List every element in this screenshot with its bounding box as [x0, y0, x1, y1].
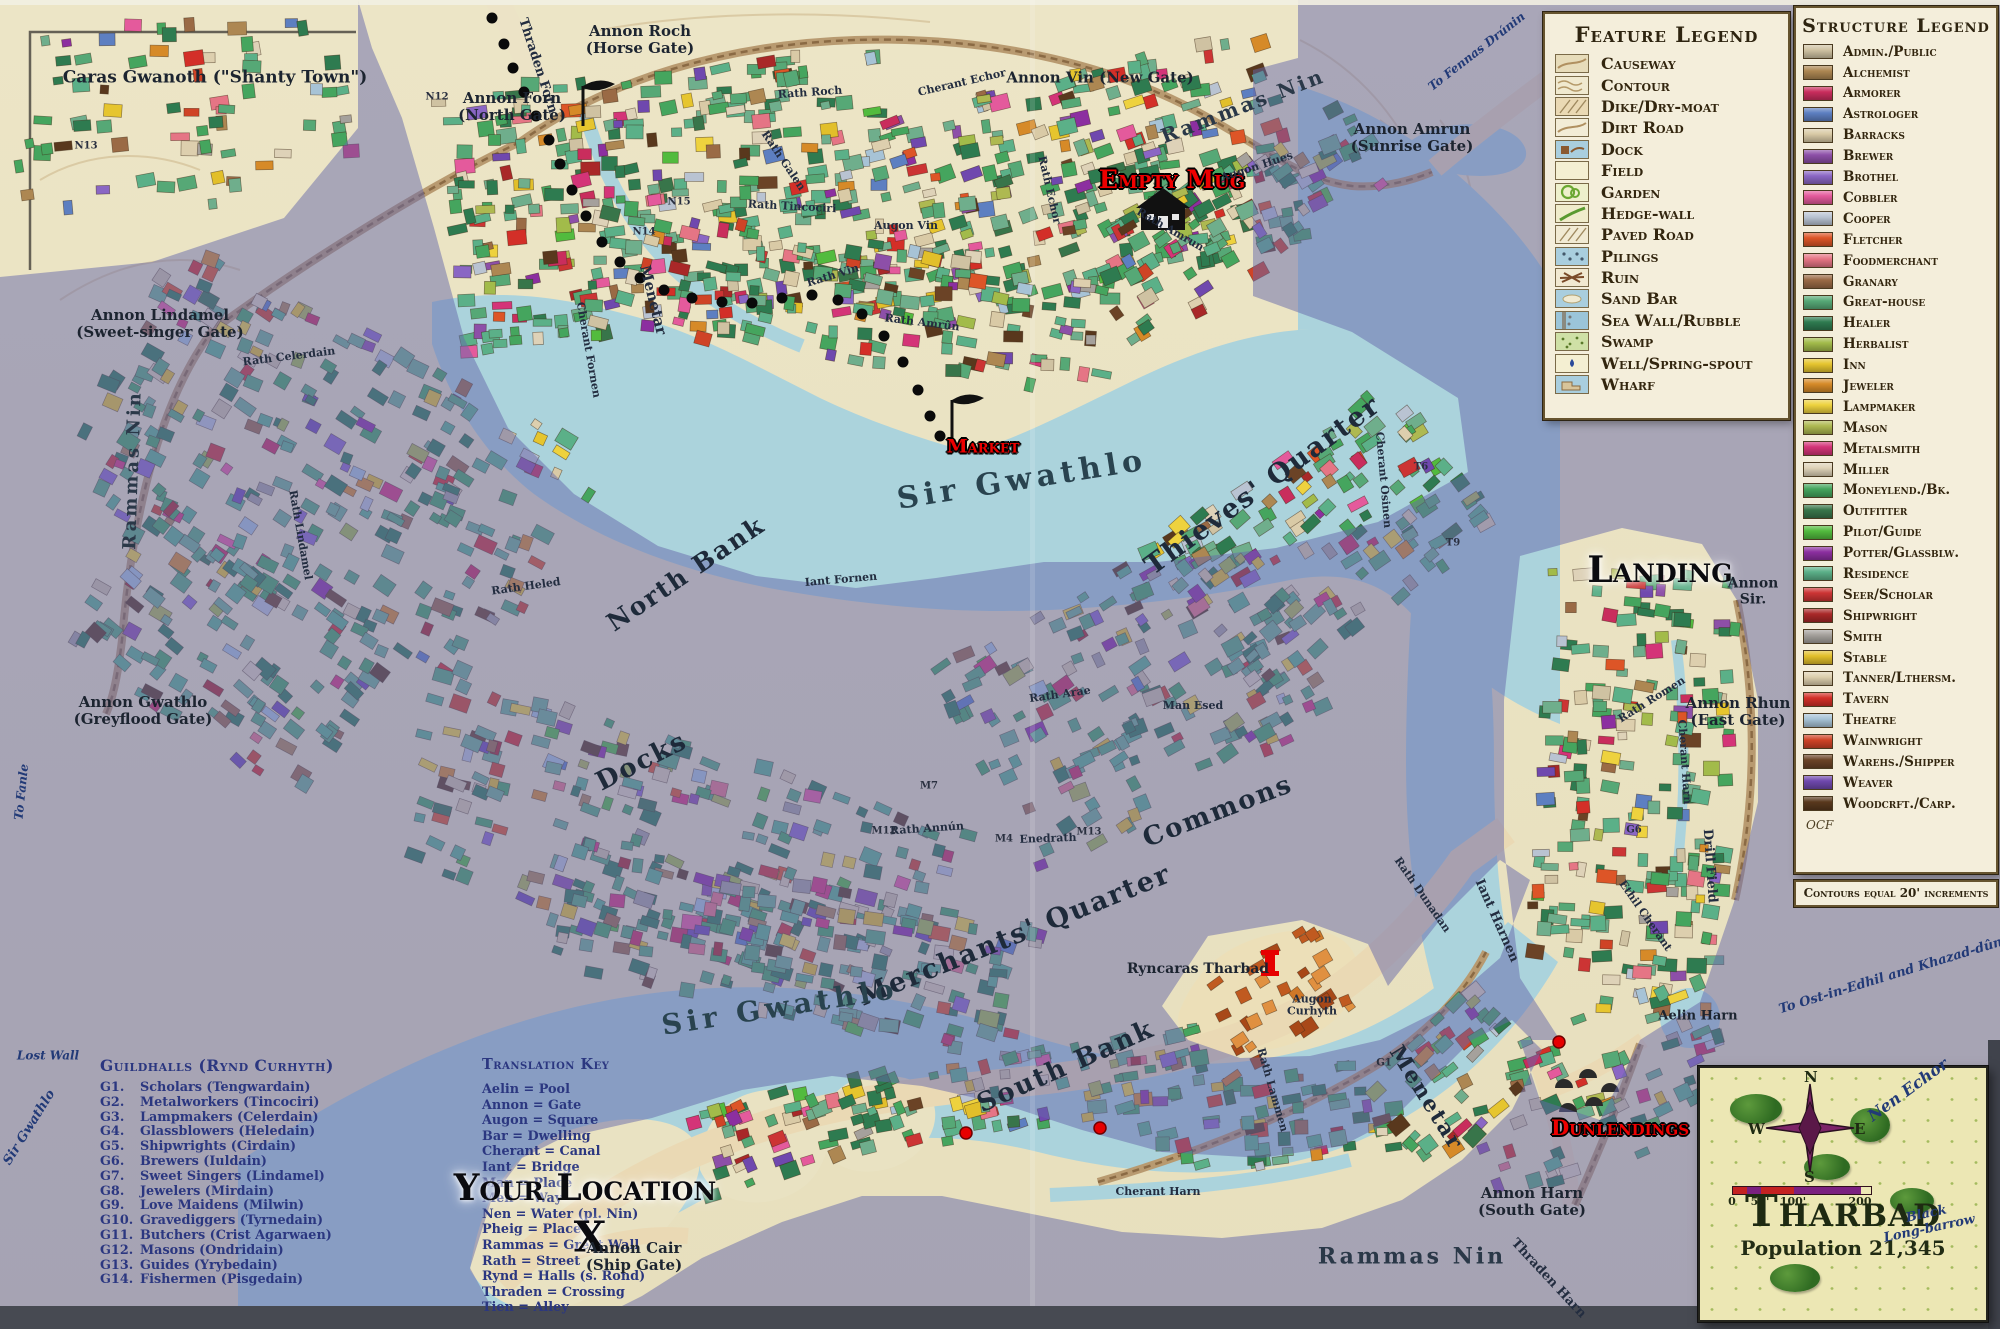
building	[638, 100, 650, 112]
contour-line	[600, 14, 930, 30]
guildhall-code: G2.	[100, 1096, 140, 1111]
building	[463, 208, 476, 225]
building	[659, 100, 677, 116]
building	[1626, 581, 1646, 589]
building	[838, 188, 853, 203]
building	[73, 120, 91, 132]
building	[242, 60, 261, 73]
building	[1565, 602, 1576, 612]
structure-legend-item: Woodcrft./Carp.	[1802, 793, 1990, 814]
building	[242, 83, 256, 98]
building	[470, 308, 486, 320]
building	[920, 295, 935, 307]
building	[1637, 608, 1655, 618]
building	[457, 145, 473, 159]
guildhall-code: G3.	[100, 1111, 140, 1126]
building	[184, 17, 195, 31]
structure-legend-item: Cooper	[1802, 208, 1990, 229]
structure-legend-label: Tanner/Lthersm.	[1843, 670, 1956, 686]
building	[74, 53, 92, 65]
building	[1012, 298, 1030, 312]
building	[1688, 856, 1699, 871]
guildhall-item: G12.Masons (Ondridain)	[100, 1244, 445, 1259]
building	[1473, 1105, 1489, 1116]
building	[798, 66, 808, 79]
building	[1702, 688, 1719, 704]
building	[1700, 844, 1709, 852]
path-swatch-icon	[1555, 118, 1589, 137]
building	[1606, 659, 1625, 670]
building	[1596, 1004, 1611, 1013]
building	[1060, 140, 1071, 152]
structure-legend-label: Tavern	[1843, 691, 1889, 707]
route-trail-dot	[747, 298, 758, 309]
building	[1088, 168, 1103, 184]
poi-marker-south-dot-3	[1553, 1036, 1565, 1048]
structure-legend-label: Residence	[1843, 566, 1909, 582]
building	[1716, 703, 1729, 716]
building	[1220, 38, 1230, 50]
structure-swatch-icon	[1803, 128, 1833, 143]
building	[797, 243, 806, 253]
building	[1636, 987, 1649, 1004]
building	[992, 291, 1009, 305]
building	[1675, 639, 1687, 654]
paper-edge-top	[0, 0, 2000, 5]
compass-rose: N E S W	[1758, 1076, 1862, 1180]
building	[996, 187, 1011, 200]
structure-swatch-icon	[1803, 441, 1833, 456]
guildhall-name: Brewers (Iuldain)	[140, 1155, 267, 1170]
building	[561, 204, 579, 214]
building	[801, 143, 817, 152]
structure-legend-label: Herbalist	[1843, 336, 1908, 352]
building	[1596, 869, 1617, 884]
building	[72, 77, 90, 92]
building	[500, 165, 513, 181]
building	[718, 322, 730, 334]
building	[492, 302, 512, 310]
building	[1166, 138, 1185, 155]
building	[199, 140, 211, 155]
building	[703, 277, 717, 291]
structure-legend-label: Miller	[1843, 462, 1889, 478]
building	[1722, 734, 1736, 747]
building	[1666, 887, 1678, 897]
guildhall-item: G6.Brewers (Iuldain)	[100, 1155, 445, 1170]
guildhalls-block: Guildhalls (Rynd Curhyth) G1.Scholars (T…	[100, 1056, 445, 1288]
seawall-swatch-icon	[1555, 311, 1589, 330]
guildhalls-title: Guildhalls (Rynd Curhyth)	[100, 1056, 445, 1075]
feature-legend-item: Dirt Road	[1553, 117, 1780, 138]
structure-swatch-icon	[1803, 608, 1833, 623]
feature-legend-item: Wharf	[1553, 374, 1780, 395]
route-trail-dot	[925, 411, 936, 422]
building	[1548, 568, 1557, 575]
feature-legend-item: Field	[1553, 160, 1780, 181]
structure-swatch-icon	[1803, 566, 1833, 581]
guildhall-item: G5.Shipwrights (Cirdain)	[100, 1140, 445, 1155]
building	[569, 214, 580, 224]
building	[1577, 740, 1587, 755]
building	[956, 315, 976, 329]
dotsgreen-swatch-icon	[1555, 332, 1589, 351]
structure-legend-panel: Structure Legend Admin./PublicAlchemistA…	[1794, 6, 1998, 874]
building	[297, 20, 309, 36]
building	[303, 120, 316, 131]
guildhall-item: G7.Sweet Singers (Lindamel)	[100, 1170, 445, 1185]
building	[475, 245, 490, 259]
building	[507, 229, 527, 245]
building	[1616, 719, 1635, 731]
building	[96, 120, 112, 133]
building	[14, 159, 24, 173]
guildhall-code: G13.	[100, 1259, 140, 1274]
building	[1676, 912, 1692, 927]
building	[1569, 862, 1578, 870]
building	[1701, 932, 1712, 945]
guildhall-name: Masons (Ondridain)	[140, 1244, 284, 1259]
building	[1598, 736, 1614, 745]
building	[1687, 958, 1707, 974]
building	[654, 71, 672, 85]
building	[1528, 902, 1538, 909]
building	[1576, 801, 1590, 814]
building	[693, 116, 705, 131]
compass-n: N	[1804, 1068, 1818, 1086]
structure-legend-label: Fletcher	[1843, 232, 1902, 248]
building	[835, 149, 850, 160]
guildhall-item: G4.Glassblowers (Heledain)	[100, 1125, 445, 1140]
building	[968, 242, 982, 252]
building	[1075, 202, 1090, 215]
structure-legend-item: Pilot/Guide	[1802, 522, 1990, 543]
building	[275, 149, 292, 158]
route-trail-dot	[807, 290, 818, 301]
feature-legend-label: Pilings	[1601, 247, 1658, 266]
building	[1713, 864, 1730, 874]
translation-entry: Aelin = Pool	[482, 1082, 747, 1098]
building	[588, 281, 597, 290]
building	[1645, 643, 1663, 659]
building	[100, 85, 109, 94]
guildhall-code: G6.	[100, 1155, 140, 1170]
structure-legend-label: Brewer	[1843, 148, 1893, 164]
structure-legend-item: Tanner/Lthersm.	[1802, 668, 1990, 689]
building	[96, 185, 110, 194]
building	[1070, 68, 1082, 81]
structure-swatch-icon	[1803, 211, 1833, 226]
building	[1563, 947, 1574, 958]
structure-legend-item: Brothel	[1802, 167, 1990, 188]
feature-legend-item: Hedge-wall	[1553, 203, 1780, 224]
building	[628, 179, 640, 190]
building	[1600, 940, 1613, 949]
building	[1694, 678, 1705, 687]
building	[256, 161, 274, 170]
building	[578, 149, 592, 160]
building	[128, 55, 147, 69]
feature-legend-label: Sand Bar	[1601, 289, 1677, 308]
guildhall-name: Fishermen (Pisgedain)	[140, 1273, 303, 1288]
building	[1616, 613, 1636, 626]
building	[1444, 1112, 1461, 1127]
building	[1571, 918, 1590, 926]
building	[493, 312, 505, 322]
building	[493, 91, 504, 99]
building	[928, 219, 946, 234]
feature-legend-label: Field	[1601, 161, 1643, 180]
guildhall-name: Sweet Singers (Lindamel)	[140, 1170, 325, 1185]
building	[1194, 280, 1213, 297]
building	[583, 199, 599, 207]
feature-legend-label: Ruin	[1601, 268, 1639, 287]
route-trail-dot	[531, 111, 542, 122]
building	[631, 284, 643, 293]
hedge-swatch-icon	[1555, 204, 1589, 223]
guildhall-code: G7.	[100, 1170, 140, 1185]
building	[1097, 183, 1112, 197]
translation-entry: Cherant = Canal	[482, 1144, 747, 1160]
feature-legend-item: Sand Bar	[1553, 288, 1780, 309]
feature-legend-item: Pilings	[1553, 246, 1780, 267]
building	[1600, 780, 1619, 794]
building	[509, 335, 522, 345]
building	[681, 93, 694, 108]
building	[1007, 1116, 1019, 1128]
contour-footnote: Contours equal 20' increments	[1794, 880, 1998, 907]
structure-legend-label: Warehs./Shipper	[1843, 754, 1954, 770]
building	[1681, 694, 1693, 702]
building	[615, 165, 625, 178]
building	[605, 140, 624, 150]
guildhall-name: Glassblowers (Heledain)	[140, 1125, 315, 1140]
building	[124, 19, 141, 32]
building	[750, 286, 760, 296]
building	[757, 247, 765, 261]
building	[1574, 690, 1587, 705]
table-edge-right	[1988, 1040, 2000, 1329]
feature-legend-item: Garden	[1553, 181, 1780, 202]
building	[956, 336, 977, 348]
building	[136, 172, 156, 188]
building	[495, 114, 507, 125]
building	[1592, 685, 1611, 700]
route-trail-dot	[555, 159, 566, 170]
building	[1690, 788, 1710, 805]
structure-legend-item: Healer	[1802, 313, 1990, 334]
fold-crease	[1030, 0, 1035, 1329]
structure-legend-label: Stable	[1843, 650, 1887, 666]
building	[1230, 129, 1246, 144]
building	[229, 178, 242, 192]
building	[1543, 701, 1562, 713]
building	[1545, 736, 1563, 745]
structure-legend-label: Shipwright	[1843, 608, 1917, 624]
map-canvas[interactable]: Feature Legend CausewayContourDike/Dry-m…	[0, 0, 2000, 1329]
building	[844, 244, 862, 260]
building	[150, 45, 169, 57]
feature-legend-item: Paved Road	[1553, 224, 1780, 245]
building	[1545, 875, 1558, 883]
building	[942, 1116, 956, 1129]
compass-s: S	[1804, 1168, 1815, 1186]
structure-legend-label: Cooper	[1843, 211, 1891, 227]
translation-entry: Bar = Dwelling	[482, 1129, 747, 1145]
building	[591, 267, 603, 279]
building	[710, 62, 731, 75]
building	[459, 181, 475, 189]
compass-w: W	[1748, 1120, 1765, 1138]
building	[54, 141, 72, 151]
building	[1161, 78, 1178, 91]
structure-legend-label: Great-house	[1843, 294, 1925, 310]
building	[62, 39, 72, 48]
feature-legend-panel: Feature Legend CausewayContourDike/Dry-m…	[1543, 12, 1790, 420]
building	[56, 55, 72, 66]
building	[1062, 225, 1076, 235]
structure-swatch-icon	[1803, 713, 1833, 728]
building	[624, 201, 638, 217]
route-trail-dot	[635, 273, 646, 284]
building	[1703, 761, 1719, 776]
building	[932, 202, 945, 218]
building	[1255, 1161, 1265, 1171]
building	[1194, 37, 1212, 52]
structure-legend-item: Fletcher	[1802, 229, 1990, 250]
guildhall-name: Metalworkers (Tincociri)	[140, 1096, 319, 1111]
building	[977, 94, 991, 103]
building	[1532, 884, 1544, 898]
building	[591, 330, 601, 341]
structure-legend-item: Weaver	[1802, 772, 1990, 793]
building	[957, 277, 969, 289]
building	[1633, 646, 1645, 657]
structure-swatch-icon	[1803, 295, 1833, 310]
structure-swatch-icon	[1803, 775, 1833, 790]
feature-legend-item: Ruin	[1553, 267, 1780, 288]
building	[1559, 903, 1575, 911]
building	[1557, 636, 1567, 647]
building	[1651, 872, 1670, 885]
structure-legend-label: Weaver	[1843, 775, 1893, 791]
dock-swatch-icon	[1555, 140, 1589, 159]
building	[604, 186, 614, 198]
building	[1573, 568, 1594, 581]
building	[1659, 784, 1671, 791]
structure-legend-label: Pilot/Guide	[1843, 524, 1921, 540]
structure-legend-item: Wainwright	[1802, 731, 1990, 752]
building	[218, 104, 235, 113]
building	[1525, 943, 1544, 960]
building	[1041, 283, 1063, 299]
building	[518, 279, 533, 289]
structure-legend-item: Seer/Scholar	[1802, 584, 1990, 605]
building	[982, 165, 998, 182]
structure-swatch-icon	[1803, 462, 1833, 477]
building	[241, 36, 253, 51]
guildhall-code: G8.	[100, 1185, 140, 1200]
building	[34, 116, 52, 125]
guildhall-name: Scholars (Tengwardain)	[140, 1081, 310, 1096]
building	[941, 1136, 953, 1147]
building	[1059, 242, 1080, 257]
structure-swatch-icon	[1803, 274, 1833, 289]
building	[719, 307, 733, 319]
building	[648, 184, 660, 195]
building	[783, 270, 800, 287]
building	[1041, 359, 1054, 371]
building	[1128, 61, 1142, 75]
building	[1624, 702, 1642, 711]
building	[663, 152, 679, 163]
building	[645, 300, 654, 313]
building	[543, 250, 558, 264]
structure-swatch-icon	[1803, 399, 1833, 414]
building	[545, 188, 564, 200]
building	[1593, 701, 1607, 711]
structure-swatch-icon	[1803, 546, 1833, 561]
building	[228, 22, 247, 36]
structure-swatch-icon	[1803, 378, 1833, 393]
building	[602, 88, 618, 103]
building	[628, 216, 645, 226]
guildhall-name: Guides (Yrybedain)	[140, 1259, 278, 1274]
route-trail-dot	[487, 13, 498, 24]
building	[1593, 828, 1603, 841]
tharbad-inset-box: N E S W 050'100'200 Tharbad Population 2…	[1698, 1066, 1988, 1322]
guildhall-item: G10.Gravediggers (Tyrnedain)	[100, 1214, 445, 1229]
building	[1619, 931, 1630, 947]
building	[1713, 884, 1730, 897]
structure-swatch-icon	[1803, 358, 1833, 373]
structure-legend-item: Great-house	[1802, 292, 1990, 313]
building	[1619, 760, 1634, 770]
building	[1696, 895, 1705, 903]
building	[467, 105, 489, 120]
building	[1567, 731, 1578, 743]
building	[752, 113, 771, 129]
building	[1641, 713, 1653, 726]
building	[763, 268, 780, 282]
route-trail-dot	[913, 385, 924, 396]
feature-legend-label: Swamp	[1601, 332, 1653, 351]
building	[621, 80, 632, 89]
route-trail-dot	[833, 295, 844, 306]
building	[1552, 658, 1570, 672]
building	[832, 306, 852, 317]
translation-entry: Men = Way	[482, 1191, 747, 1207]
guildhall-name: Lampmakers (Celerdain)	[140, 1111, 319, 1126]
building	[1536, 792, 1555, 806]
building	[1532, 849, 1549, 857]
guildhall-code: G9.	[100, 1199, 140, 1214]
building	[980, 1101, 990, 1113]
building	[171, 133, 190, 141]
building	[1541, 863, 1558, 871]
building	[1071, 319, 1085, 328]
building	[941, 343, 952, 354]
building	[647, 133, 658, 147]
route-trail-dot	[581, 211, 592, 222]
building	[1624, 596, 1641, 607]
building	[1702, 904, 1720, 920]
building	[492, 153, 510, 161]
hatch-swatch-icon	[1555, 97, 1589, 116]
building	[1571, 644, 1590, 655]
structure-legend-item: Mason	[1802, 417, 1990, 438]
building	[1650, 921, 1668, 934]
